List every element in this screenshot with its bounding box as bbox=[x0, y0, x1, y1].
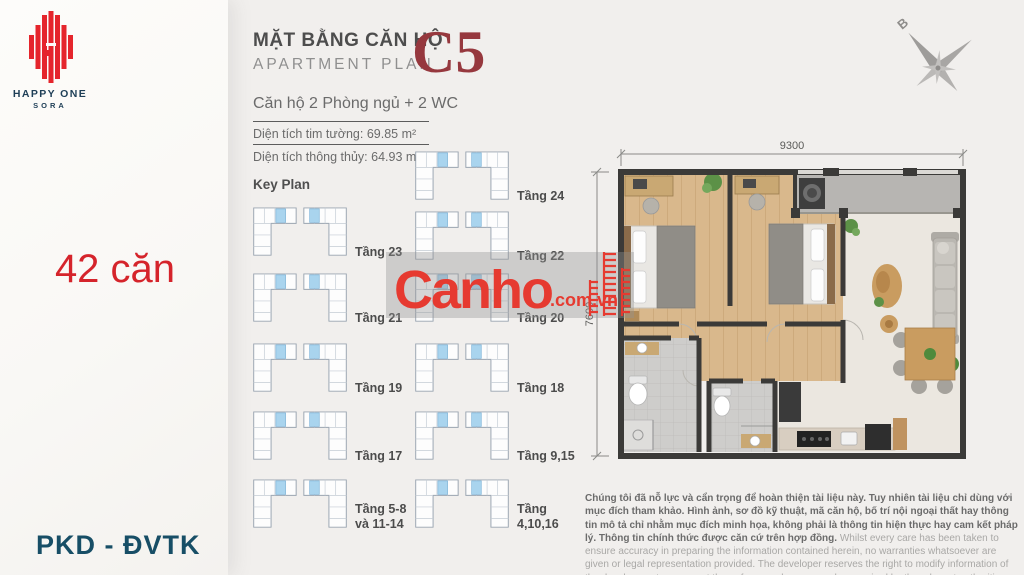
appliance-icon bbox=[865, 424, 891, 450]
keyplan-floor-19: Tầng 19 bbox=[250, 342, 421, 396]
floor-plan-thumbnail bbox=[412, 150, 512, 204]
keyplan-floor-9-15: Tầng 9,15 bbox=[412, 410, 583, 464]
fridge-icon bbox=[779, 382, 801, 422]
keyplan-floor-18: Tầng 18 bbox=[412, 342, 583, 396]
keyplan-floor-4-10-16: Tầng 4,10,16 bbox=[412, 478, 583, 532]
page-title-en: APARTMENT PLAN bbox=[253, 56, 434, 74]
toilet-icon bbox=[714, 396, 730, 416]
balcony bbox=[799, 178, 825, 209]
floor-plan-thumbnail bbox=[412, 342, 512, 396]
shower-icon bbox=[623, 420, 653, 450]
compass-north-label: B bbox=[894, 15, 911, 33]
floor-plan-thumbnail bbox=[412, 478, 512, 532]
floor-plan-thumbnail bbox=[412, 410, 512, 464]
floor-plan-thumbnail bbox=[250, 478, 350, 532]
brand-name: HAPPY ONE bbox=[9, 88, 91, 100]
dim-width-label: 9300 bbox=[780, 140, 804, 152]
floor-plan-thumbnail bbox=[250, 410, 350, 464]
left-panel: HAPPY ONE SORA 42 căn PKD - ĐVTK bbox=[0, 0, 228, 575]
toilet-icon bbox=[629, 383, 647, 405]
keyplan-floor-24: Tầng 24 bbox=[412, 150, 583, 204]
spec-gross-area: Diện tích tim tường: 69.85 m² bbox=[253, 127, 416, 141]
floor-plan-thumbnail bbox=[250, 206, 350, 260]
spec-divider bbox=[253, 144, 429, 145]
disclaimer: Chúng tôi đã nỗ lực và cẩn trọng để hoàn… bbox=[585, 492, 1019, 575]
brochure-page: HAPPY ONE SORA 42 căn PKD - ĐVTK MẶT BẰN… bbox=[0, 0, 1024, 575]
watermark-brand: Canho bbox=[394, 265, 552, 316]
chair-icon bbox=[749, 194, 765, 210]
floor-plan-thumbnail bbox=[250, 272, 350, 326]
compass-rose: B bbox=[878, 10, 998, 122]
happy-one-logo-icon bbox=[15, 8, 85, 86]
sofa-icon bbox=[931, 232, 959, 344]
plant-icon bbox=[874, 297, 884, 307]
unit-code: C5 bbox=[412, 18, 485, 87]
keyplan-title: Key Plan bbox=[253, 177, 310, 192]
keyplan-floor-5-8-11-14: Tầng 5-8 và 11-14 bbox=[250, 478, 421, 532]
spec-net-area: Diện tích thông thủy: 64.93 m² bbox=[253, 150, 420, 164]
desk-icon bbox=[625, 176, 673, 196]
floor-label: Tầng 9,15 bbox=[517, 449, 583, 464]
bed-icon bbox=[769, 224, 835, 304]
floor-plan-thumbnail bbox=[250, 342, 350, 396]
brand-logo: HAPPY ONE SORA bbox=[9, 8, 91, 110]
cabinet-icon bbox=[893, 418, 907, 450]
canho-watermark: Canho .com.vn bbox=[386, 252, 634, 318]
apartment-floor-plan: 9300 7600 bbox=[583, 136, 985, 468]
watermark-buildings-icon bbox=[586, 246, 632, 318]
floor-label: Tầng 18 bbox=[517, 381, 583, 396]
chair-icon bbox=[643, 198, 659, 214]
spec-layout: Căn hộ 2 Phòng ngủ + 2 WC bbox=[253, 95, 458, 113]
spec-divider bbox=[253, 121, 429, 122]
desk-icon bbox=[735, 176, 779, 194]
pkd-dvtk-label: PKD - ĐVTK bbox=[36, 530, 201, 561]
brand-subname: SORA bbox=[9, 101, 91, 110]
sink-icon bbox=[841, 432, 857, 445]
units-count-label: 42 căn bbox=[20, 247, 210, 292]
floor-label: Tầng 4,10,16 bbox=[517, 502, 583, 532]
floor-label: Tầng 24 bbox=[517, 189, 583, 204]
keyplan-floor-17: Tầng 17 bbox=[250, 410, 421, 464]
